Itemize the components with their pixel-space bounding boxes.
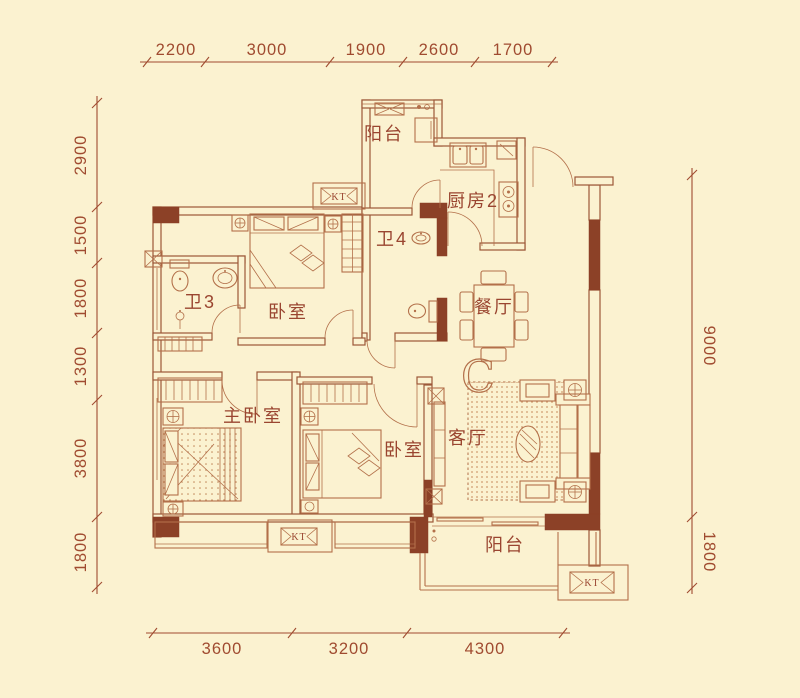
master-bedroom-furniture	[158, 378, 241, 516]
nightstand-icon	[232, 215, 248, 231]
dim-left-4: 1300	[72, 346, 90, 387]
floor-plan-image: 2200 3000 1900 2600 1700 2900 1500 1800 …	[0, 0, 800, 698]
tv-cabinet-icon	[434, 402, 445, 486]
ac-label: KT	[291, 532, 306, 543]
chair-icon	[515, 320, 528, 340]
chair-icon	[460, 292, 473, 312]
room-label-dining: 餐厅	[474, 297, 514, 317]
dim-left-1: 2900	[72, 135, 90, 176]
door-bedroom-top	[325, 310, 353, 338]
ac-unit-top: KT	[313, 183, 365, 209]
chair-icon	[460, 320, 473, 340]
dim-bottom-3: 4300	[465, 640, 506, 658]
dim-bottom-1: 3600	[202, 640, 243, 658]
ac-label: KT	[584, 578, 599, 589]
dim-left-5: 3800	[72, 438, 90, 479]
bed-icon	[303, 430, 381, 498]
dim-bottom-2: 3200	[329, 640, 370, 658]
room-label-balcony-top: 阳台	[364, 124, 404, 144]
sink-icon	[450, 143, 486, 167]
ac-unit-bottom-right: KT	[558, 565, 628, 600]
toilet-icon	[170, 260, 189, 291]
room-label-master: 主卧室	[223, 406, 283, 426]
dim-top-4: 2600	[419, 41, 460, 59]
room-label-living: 客厅	[448, 428, 488, 448]
bedroom2-furniture	[301, 382, 381, 513]
stove-icon	[499, 182, 518, 217]
dim-right-2: 1800	[700, 532, 718, 573]
armchair-icon	[520, 380, 555, 401]
unit-mark: C	[461, 352, 495, 403]
sofa-icon	[556, 394, 590, 489]
dimension-chain-bottom: 3600 3200 4300	[146, 628, 570, 658]
dimension-chain-left: 2900 1500 1800 1300 3800 1800	[72, 96, 102, 594]
floor-plan-svg: 2200 3000 1900 2600 1700 2900 1500 1800 …	[0, 0, 800, 698]
armchair-icon	[520, 481, 555, 502]
door-bath3	[212, 305, 240, 333]
door-bedroom2	[374, 384, 417, 427]
toilet-icon	[409, 301, 438, 322]
nightstand-icon	[301, 500, 318, 513]
door-kitchen	[448, 212, 482, 246]
dim-top-5: 1700	[493, 41, 534, 59]
nightstand-icon	[301, 408, 318, 425]
dim-left-3: 1800	[72, 278, 90, 319]
door-entry	[533, 147, 573, 187]
dim-left-2: 1500	[72, 215, 90, 256]
sliding-door	[432, 517, 545, 526]
bed-icon	[250, 214, 324, 288]
bedroom-top-furniture	[232, 214, 363, 288]
dim-left-6: 1800	[72, 532, 90, 573]
chair-icon	[481, 271, 506, 284]
basin-icon	[213, 268, 237, 288]
room-label-kitchen: 厨房2	[447, 191, 499, 211]
dim-top-1: 2200	[156, 41, 197, 59]
room-label-bedroom2: 卧室	[384, 440, 424, 460]
dim-top-2: 3000	[247, 41, 288, 59]
nightstand-icon	[325, 216, 341, 232]
dim-top-3: 1900	[346, 41, 387, 59]
ac-label: KT	[331, 192, 346, 203]
room-label-bath4: 卫4	[376, 229, 408, 249]
room-label-bedroom-top: 卧室	[268, 302, 308, 322]
bed-icon	[163, 428, 241, 501]
valve-icon	[417, 105, 421, 109]
dim-right-1: 9000	[700, 326, 718, 367]
room-label-bath3: 卫3	[184, 292, 216, 312]
ac-unit-bottom-center: KT	[268, 520, 332, 552]
dimension-chain-right: 9000 1800	[687, 168, 718, 594]
wardrobe-icon	[158, 378, 222, 402]
bath4-fixtures	[409, 232, 438, 322]
wardrobe-icon	[303, 382, 367, 404]
wardrobe-icon	[342, 214, 363, 272]
chair-icon	[515, 292, 528, 312]
coffee-table-icon	[516, 426, 540, 462]
room-label-balcony-bottom: 阳台	[485, 535, 525, 555]
dimension-chain-top: 2200 3000 1900 2600 1700	[140, 41, 558, 67]
basin-icon	[412, 232, 430, 244]
door-bath4-bottom	[367, 340, 395, 368]
nightstand-icon	[163, 408, 183, 425]
shower-drain-icon	[176, 310, 184, 329]
